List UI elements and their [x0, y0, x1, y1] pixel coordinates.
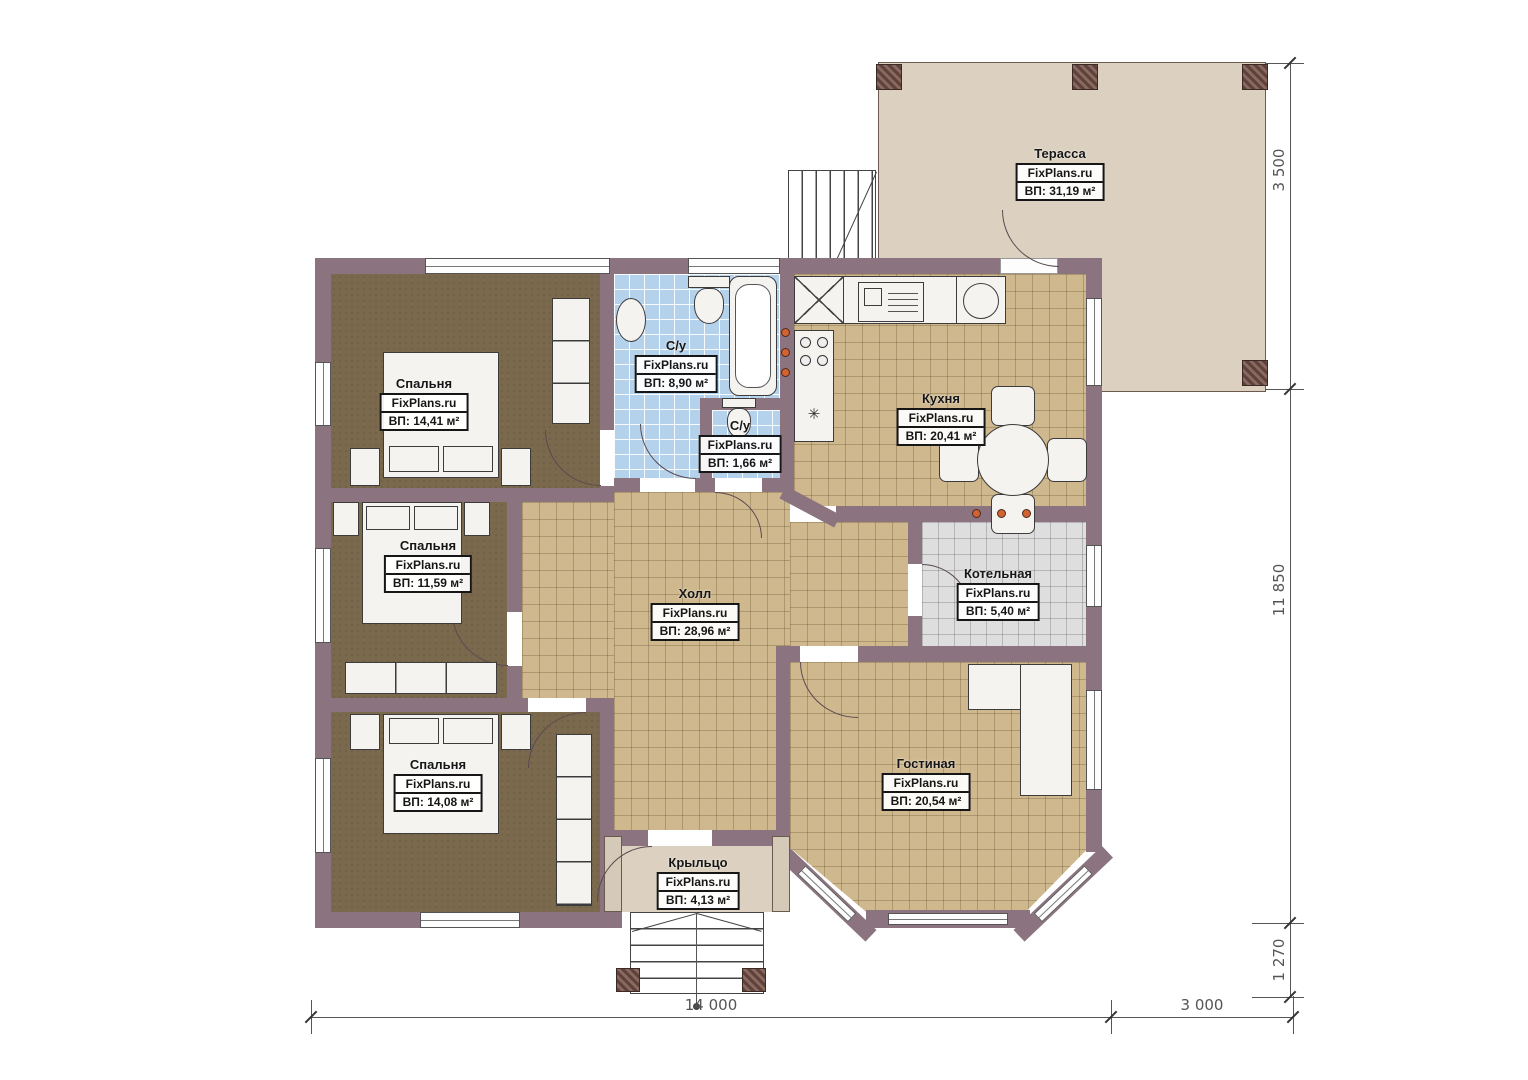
kitchen-window — [1086, 298, 1102, 386]
terrace-column — [1242, 64, 1268, 90]
toilet-tank — [688, 276, 730, 288]
room-label-bedroom1: Спальня FixPlans.ru ВП: 14,41 м² — [380, 376, 469, 431]
bedroom2-3-wall — [586, 698, 614, 712]
bedroom2-right-wall — [507, 502, 522, 612]
bathtub-inner — [735, 284, 771, 388]
dim-stub — [1266, 389, 1304, 390]
room-label-hall: Холл FixPlans.ru ВП: 28,96 м² — [651, 586, 740, 641]
room-name: Гостиная — [897, 756, 956, 771]
hall-floor — [614, 492, 790, 830]
room-name: Котельная — [964, 566, 1032, 581]
bedroom2-window — [315, 548, 331, 643]
bedroom1-top-window — [425, 258, 610, 274]
wc-toilet-tank — [722, 398, 756, 408]
pillow — [443, 718, 493, 744]
porch-axis-line — [696, 912, 697, 1006]
brand-label: FixPlans.ru — [637, 357, 716, 373]
wall-right — [1086, 258, 1102, 298]
room-area: ВП: 5,40 м² — [959, 601, 1038, 619]
boiler-left-wall — [908, 522, 922, 564]
room-area: ВП: 20,41 м² — [899, 426, 984, 444]
brand-label: FixPlans.ru — [386, 557, 470, 573]
star-glyph: ✳ — [808, 405, 821, 423]
brand-label: FixPlans.ru — [659, 874, 738, 890]
room-name: Крыльцо — [668, 855, 727, 870]
porch-right-wall — [772, 836, 790, 912]
bathroom-kitchen-wall — [780, 274, 794, 490]
stove-burner — [800, 337, 811, 348]
room-name: С/у — [730, 418, 750, 433]
room-name: Терасса — [1034, 146, 1086, 161]
room-area: ВП: 4,13 м² — [659, 890, 738, 908]
room-label-wc: С/у FixPlans.ru ВП: 1,66 м² — [699, 418, 782, 473]
room-area: ВП: 14,08 м² — [396, 792, 481, 810]
nightstand — [350, 714, 380, 750]
room-name: С/у — [666, 338, 686, 353]
living-top-wall — [858, 646, 1086, 662]
bathroom-bottom-wall — [614, 478, 640, 492]
vent-dot — [781, 328, 790, 337]
wall-bottom — [520, 912, 622, 928]
closet — [556, 734, 592, 906]
bathroom-window — [688, 258, 780, 274]
room-area: ВП: 1,66 м² — [701, 453, 780, 471]
room-area: ВП: 28,96 м² — [653, 621, 738, 639]
room-label-bathroom: С/у FixPlans.ru ВП: 8,90 м² — [635, 338, 718, 393]
sofa-vertical — [1020, 664, 1072, 796]
floor-plan: ✳ Терасса FixPlans.ru ВП: 31,19 м² Спаль… — [0, 0, 1528, 1080]
dim-terrace-depth: 3 500 — [1270, 149, 1288, 192]
bathroom-bottom-wall — [695, 478, 715, 492]
wall-right — [1086, 790, 1102, 852]
dim-porch-depth: 1 270 — [1270, 939, 1288, 982]
stove-burner — [800, 355, 811, 366]
terrace-column — [876, 64, 902, 90]
room-label-kitchen: Кухня FixPlans.ru ВП: 20,41 м² — [897, 391, 986, 446]
bedroom2-right-wall — [507, 666, 522, 698]
bedroom1-left-window — [315, 362, 331, 426]
toilet-bowl — [694, 288, 724, 324]
room-name: Спальня — [396, 376, 452, 391]
boiler-window — [1086, 545, 1102, 607]
pillow — [414, 506, 458, 530]
room-info-box: FixPlans.ru ВП: 20,54 м² — [882, 773, 971, 811]
terrace-column — [1072, 64, 1098, 90]
wall-left — [315, 426, 331, 548]
room-name: Спальня — [400, 538, 456, 553]
room-label-terrace: Терасса FixPlans.ru ВП: 31,19 м² — [1016, 146, 1105, 201]
nightstand — [333, 502, 359, 536]
bedroom3-bottom-window — [420, 912, 520, 928]
living-left-wall — [776, 662, 790, 852]
room-info-box: FixPlans.ru ВП: 20,41 м² — [897, 408, 986, 446]
room-info-box: FixPlans.ru ВП: 8,90 м² — [635, 355, 718, 393]
bedroom2-3-wall — [331, 698, 528, 712]
dim-line-right — [1290, 63, 1291, 998]
dim-stub — [1252, 997, 1304, 998]
dim-house-width: 14 000 — [685, 996, 738, 1014]
room-area: ВП: 8,90 м² — [637, 373, 716, 391]
nightstand — [501, 714, 531, 750]
wall-right — [1086, 386, 1102, 545]
wardrobe — [552, 298, 590, 424]
living-right-window — [1086, 690, 1102, 790]
room-info-box: FixPlans.ru ВП: 28,96 м² — [651, 603, 740, 641]
kitchen-side-counter: ✳ — [794, 330, 834, 442]
wall-top — [610, 258, 688, 274]
kitchen-bottom-wall — [836, 506, 1086, 522]
brand-label: FixPlans.ru — [653, 605, 738, 621]
vent-dot — [781, 368, 790, 377]
terrace-stairs — [788, 170, 876, 262]
nightstand — [501, 448, 531, 486]
room-info-box: FixPlans.ru ВП: 5,40 м² — [957, 583, 1040, 621]
hall-floor-notch — [522, 502, 614, 698]
dim-house-depth: 11 850 — [1270, 564, 1288, 617]
nightstand — [350, 448, 380, 486]
brand-label: FixPlans.ru — [701, 437, 780, 453]
room-label-boiler: Котельная FixPlans.ru ВП: 5,40 м² — [957, 566, 1040, 621]
terrace-column — [1242, 360, 1268, 386]
vent-dot — [997, 509, 1006, 518]
fridge — [794, 276, 844, 324]
pillow — [389, 446, 439, 472]
pillow — [389, 718, 439, 744]
wall-top — [780, 258, 1000, 274]
pillow — [366, 506, 410, 530]
bay-bottom-window — [888, 913, 1008, 925]
dresser — [345, 662, 497, 694]
dim-stub — [1266, 63, 1304, 64]
dining-table — [977, 424, 1049, 496]
oven-panel — [864, 288, 882, 306]
oven-vents — [888, 288, 918, 316]
room-label-porch: Крыльцо FixPlans.ru ВП: 4,13 м² — [657, 855, 740, 910]
room-label-bedroom2: Спальня FixPlans.ru ВП: 11,59 м² — [384, 538, 472, 593]
room-label-living: Гостиная FixPlans.ru ВП: 20,54 м² — [882, 756, 971, 811]
kitchen-sink — [963, 283, 999, 319]
room-area: ВП: 14,41 м² — [382, 411, 467, 429]
vent-dot — [1022, 509, 1031, 518]
brand-label: FixPlans.ru — [1018, 165, 1103, 181]
dining-chair — [991, 386, 1035, 426]
vent-dot — [972, 509, 981, 518]
nightstand — [464, 502, 490, 536]
wall-top — [315, 258, 425, 274]
dim-terrace-width: 3 000 — [1181, 996, 1224, 1014]
bedroom1-2-wall — [331, 488, 614, 502]
stove-burner — [817, 337, 828, 348]
room-area: ВП: 11,59 м² — [386, 573, 470, 591]
sink — [616, 298, 646, 342]
dishwasher-icon: ✳ — [795, 389, 833, 439]
hall-floor-east — [790, 522, 908, 646]
room-name: Спальня — [410, 757, 466, 772]
brand-label: FixPlans.ru — [899, 410, 984, 426]
room-info-box: FixPlans.ru ВП: 11,59 м² — [384, 555, 472, 593]
room-info-box: FixPlans.ru ВП: 14,41 м² — [380, 393, 469, 431]
boiler-left-wall — [908, 616, 922, 648]
vent-dot — [781, 348, 790, 357]
living-top-wall — [776, 646, 800, 662]
brand-label: FixPlans.ru — [884, 775, 969, 791]
brand-label: FixPlans.ru — [382, 395, 467, 411]
wall-bottom — [315, 912, 420, 928]
room-info-box: FixPlans.ru ВП: 31,19 м² — [1016, 163, 1105, 201]
brand-label: FixPlans.ru — [959, 585, 1038, 601]
pillow — [443, 446, 493, 472]
room-label-bedroom3: Спальня FixPlans.ru ВП: 14,08 м² — [394, 757, 483, 812]
porch-column — [742, 968, 766, 992]
room-area: ВП: 20,54 м² — [884, 791, 969, 809]
bedroom3-left-window — [315, 758, 331, 853]
room-name: Холл — [679, 586, 712, 601]
room-info-box: FixPlans.ru ВП: 1,66 м² — [699, 435, 782, 473]
wall-left — [315, 643, 331, 758]
room-info-box: FixPlans.ru ВП: 4,13 м² — [657, 872, 740, 910]
brand-label: FixPlans.ru — [396, 776, 481, 792]
room-info-box: FixPlans.ru ВП: 14,08 м² — [394, 774, 483, 812]
dim-line-bottom — [311, 1017, 1294, 1018]
porch-column — [616, 968, 640, 992]
room-name: Кухня — [922, 391, 960, 406]
dim-stub — [1252, 923, 1304, 924]
wall-right — [1086, 607, 1102, 690]
wall-left — [315, 258, 331, 362]
stove-burner — [817, 355, 828, 366]
room-area: ВП: 31,19 м² — [1018, 181, 1103, 199]
dining-chair — [1047, 438, 1087, 482]
bedrooms-divider-wall — [600, 274, 614, 430]
